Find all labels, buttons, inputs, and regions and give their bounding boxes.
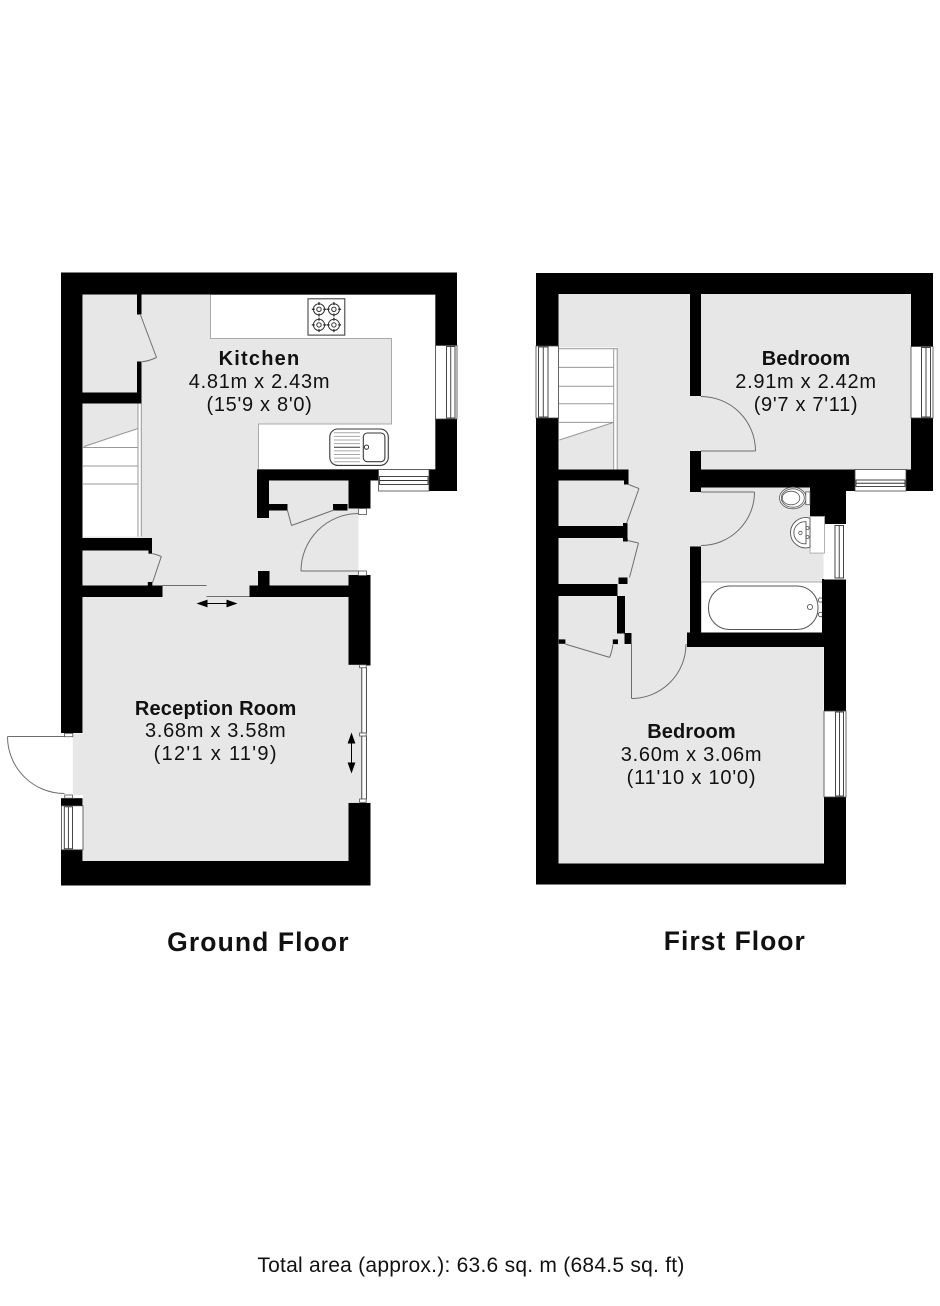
svg-text:Bedroom: Bedroom: [762, 348, 850, 370]
svg-text:(12'1 x 11'9): (12'1 x 11'9): [154, 743, 278, 765]
svg-text:Bedroom: Bedroom: [647, 721, 735, 743]
svg-text:Reception Room: Reception Room: [135, 698, 297, 720]
svg-text:4.81m x 2.43m: 4.81m x 2.43m: [189, 371, 330, 393]
svg-text:(11'10 x 10'0): (11'10 x 10'0): [627, 767, 757, 789]
svg-text:First Floor: First Floor: [664, 926, 806, 956]
svg-text:Kitchen: Kitchen: [219, 348, 301, 370]
svg-text:Ground Floor: Ground Floor: [167, 927, 349, 957]
svg-text:Total area (approx.): 63.6 sq.: Total area (approx.): 63.6 sq. m (684.5 …: [257, 1254, 684, 1277]
svg-text:2.91m x 2.42m: 2.91m x 2.42m: [735, 371, 876, 393]
svg-text:(15'9 x 8'0): (15'9 x 8'0): [206, 394, 312, 416]
svg-text:(9'7 x 7'11): (9'7 x 7'11): [754, 394, 859, 416]
svg-text:3.60m x 3.06m: 3.60m x 3.06m: [621, 744, 762, 766]
svg-text:3.68m x 3.58m: 3.68m x 3.58m: [145, 720, 286, 742]
